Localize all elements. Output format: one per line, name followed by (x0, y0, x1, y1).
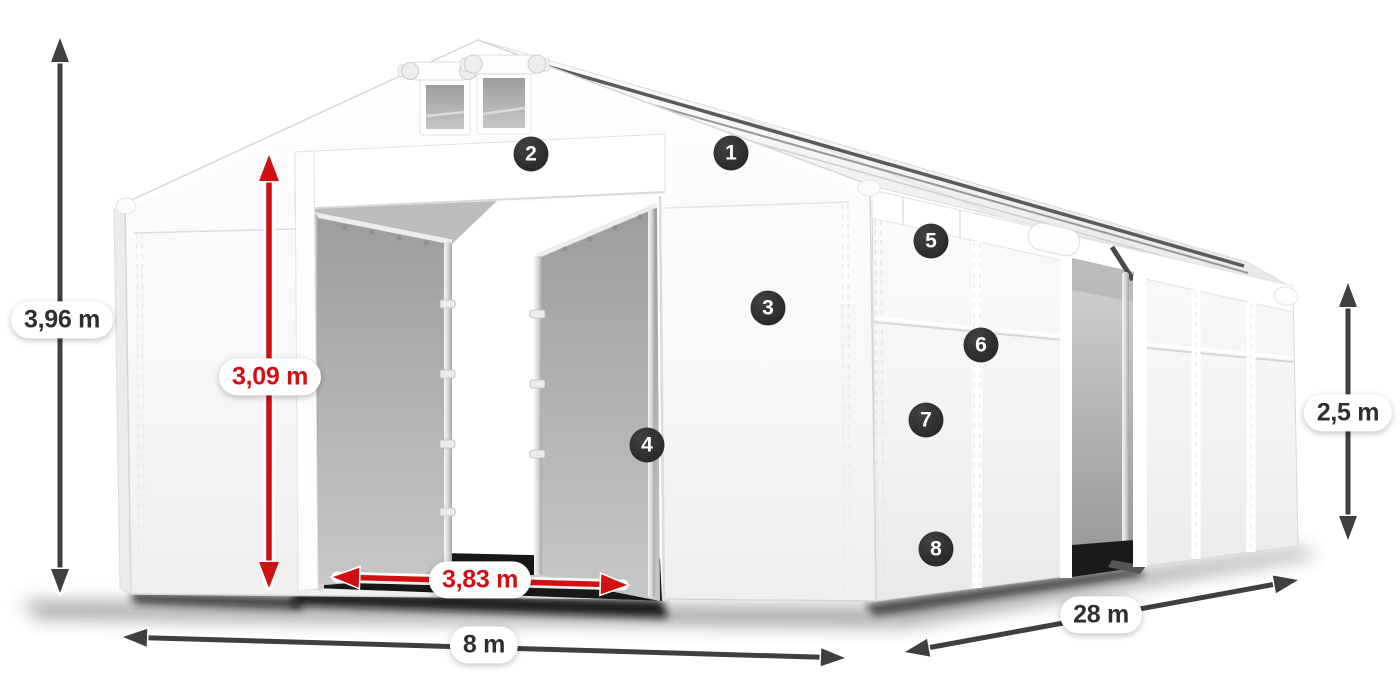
product-dimension-diagram: 3,96 m 3,09 m 3,83 m 8 m 28 m 2,5 m 1 2 … (0, 0, 1400, 700)
feature-marker-4: 4 (630, 428, 665, 463)
dimension-label-entrance-height: 3,09 m (219, 358, 321, 395)
feature-marker-5: 5 (914, 224, 949, 259)
feature-marker-6: 6 (964, 328, 999, 363)
feature-marker-2: 2 (514, 137, 549, 172)
feature-marker-3: 3 (751, 291, 786, 326)
tent-entrance (295, 134, 665, 601)
dimension-label-total-height: 3,96 m (11, 301, 113, 338)
feature-marker-1: 1 (714, 136, 749, 171)
tent-illustration (0, 0, 1400, 700)
dimension-label-length: 28 m (1060, 596, 1142, 633)
dimension-label-gable-width: 8 m (450, 626, 518, 663)
feature-marker-8: 8 (919, 532, 954, 567)
feature-marker-7: 7 (909, 403, 944, 438)
dimension-label-side-height: 2,5 m (1304, 394, 1392, 431)
dimension-label-entrance-width: 3,83 m (429, 561, 531, 598)
